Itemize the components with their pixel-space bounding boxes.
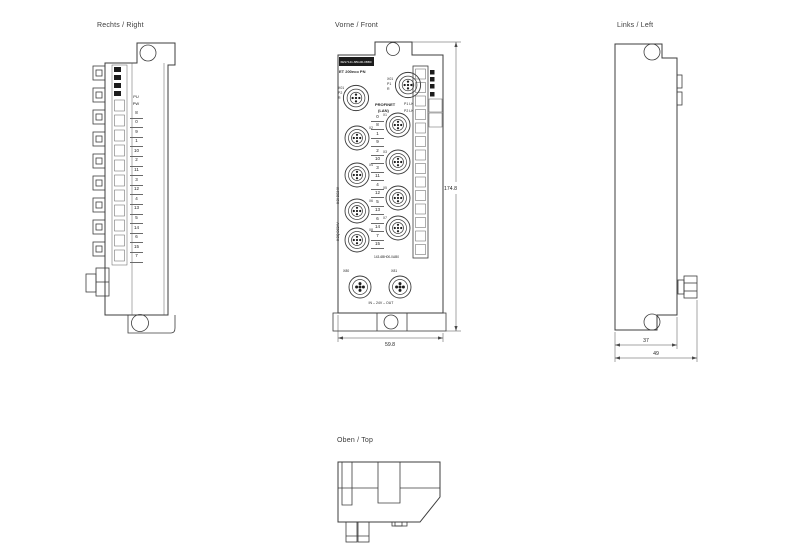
mounting-hole-bottom bbox=[132, 315, 149, 332]
top-view-drawing bbox=[325, 450, 485, 555]
channel-number: 0 bbox=[130, 119, 143, 129]
channel-number: 15 bbox=[371, 241, 384, 250]
channel-number-column-right: 8091102113124135146157 bbox=[130, 109, 143, 263]
channel-number: 9 bbox=[371, 139, 384, 148]
profinet-port-1-m12 bbox=[395, 72, 420, 97]
channel-number-column-front: 0819210311412513614715 bbox=[371, 113, 384, 249]
channel-number: 14 bbox=[130, 224, 143, 234]
dim-depth-total-text: 49 bbox=[653, 351, 659, 357]
power-connector-stub bbox=[346, 522, 369, 542]
channel-number: 7 bbox=[371, 232, 384, 241]
svg-text:P1: P1 bbox=[387, 82, 391, 86]
left-view-drawing: 37 49 bbox=[605, 36, 735, 366]
power-left-id: X80 bbox=[343, 269, 349, 273]
svg-text:X01: X01 bbox=[387, 77, 393, 81]
m12-connector-profiles bbox=[93, 66, 105, 256]
channel-number: 5 bbox=[130, 215, 143, 225]
channel-number: 8 bbox=[130, 109, 143, 119]
channel-number: 8 bbox=[371, 122, 384, 131]
channel-number: 5 bbox=[371, 198, 384, 207]
channel-number: 1 bbox=[130, 138, 143, 148]
bottom-edge-bump bbox=[392, 522, 407, 526]
article-number: 143-6BH00-0AB0 bbox=[374, 255, 399, 259]
channel-number: 2 bbox=[371, 147, 384, 156]
channel-number: 12 bbox=[130, 186, 143, 196]
power-out-connector bbox=[389, 276, 411, 298]
power-right-id: X81 bbox=[391, 269, 397, 273]
io-socket-x2 bbox=[345, 126, 369, 150]
io-socket-x5 bbox=[386, 186, 410, 210]
power-in-connector bbox=[349, 276, 371, 298]
io-socket-x1 bbox=[386, 113, 410, 137]
channel-number: 4 bbox=[130, 195, 143, 205]
io-socket-x8 bbox=[345, 228, 369, 252]
channel-number: 2 bbox=[130, 157, 143, 167]
svg-text:X01: X01 bbox=[338, 86, 344, 90]
channel-number: 3 bbox=[371, 164, 384, 173]
channel-number: 6 bbox=[130, 234, 143, 244]
profinet-port-2-m12 bbox=[343, 85, 368, 110]
channel-number: 15 bbox=[130, 243, 143, 253]
channel-number: 10 bbox=[130, 147, 143, 157]
view-title-left: Links / Left bbox=[617, 22, 653, 29]
bus-label-1: PROFINET bbox=[375, 102, 396, 107]
channel-number: 7 bbox=[130, 253, 143, 263]
io-socket-x4 bbox=[345, 163, 369, 187]
top-view-body bbox=[338, 462, 440, 522]
channel-number: 1 bbox=[371, 130, 384, 139]
io-socket-x7 bbox=[386, 216, 410, 240]
channel-number: 0 bbox=[371, 113, 384, 122]
io-socket-x6 bbox=[345, 199, 369, 223]
view-title-front: Vorne / Front bbox=[335, 22, 378, 29]
product-name: ET 200eco PN bbox=[339, 69, 366, 74]
front-view-drawing: 6ES7141-6BG00-0BB0 ET 200eco PN X01 P1 R… bbox=[325, 36, 475, 352]
channel-number: 11 bbox=[371, 173, 384, 182]
pin-header-pw: PW bbox=[129, 100, 143, 107]
channel-number: 12 bbox=[371, 190, 384, 199]
channel-number: 14 bbox=[371, 224, 384, 233]
connector-bump bbox=[677, 75, 682, 88]
power-connector-profile bbox=[678, 276, 697, 298]
io-socket-x3 bbox=[386, 150, 410, 174]
order-number: 6ES7141-6BG00-0BB0 bbox=[341, 60, 372, 64]
channel-number: 6 bbox=[371, 215, 384, 224]
power-in-out-label: IN – 24V – OUT bbox=[369, 301, 395, 305]
side-text-dq: 8 DQ DC24V bbox=[336, 222, 340, 241]
channel-number: 10 bbox=[371, 156, 384, 165]
channel-number: 11 bbox=[130, 167, 143, 177]
bottom-plate bbox=[333, 313, 446, 331]
side-text-di: 8 DI DC24V bbox=[336, 186, 340, 204]
channel-number: 3 bbox=[130, 176, 143, 186]
left-view-body bbox=[615, 44, 677, 330]
dim-width-text: 59.8 bbox=[385, 342, 395, 348]
view-title-top: Oben / Top bbox=[337, 437, 373, 444]
pin-header-pu: PU bbox=[129, 93, 143, 100]
dim-height-text: 174.8 bbox=[444, 186, 457, 192]
mounting-hole-bottom bbox=[384, 315, 398, 329]
svg-text:P2: P2 bbox=[338, 91, 342, 95]
connector-bump bbox=[677, 92, 682, 105]
channel-number: 9 bbox=[130, 128, 143, 138]
dimension-width: 59.8 bbox=[338, 315, 443, 348]
channel-number: 13 bbox=[371, 207, 384, 216]
dim-depth-inner-text: 37 bbox=[643, 338, 649, 344]
channel-number: 4 bbox=[371, 181, 384, 190]
view-title-right: Rechts / Right bbox=[97, 22, 144, 29]
channel-number: 13 bbox=[130, 205, 143, 215]
